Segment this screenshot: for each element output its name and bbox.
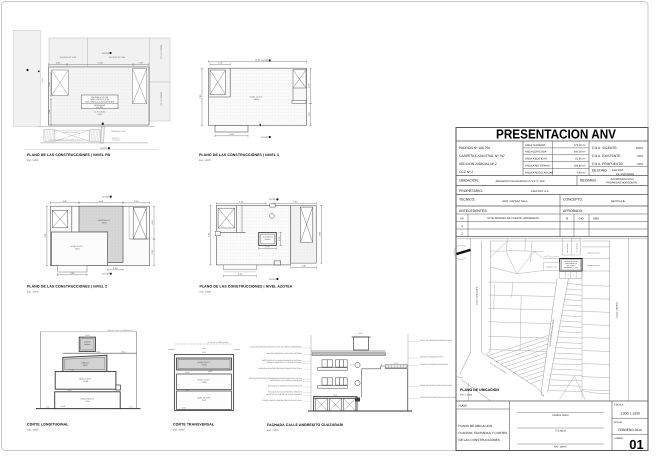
svg-text:+6.33: +6.33 <box>69 369 74 372</box>
svg-text:ANDRESITO GUAZURARI 1771-1777: ANDRESITO GUAZURARI 1771-1777 BIS <box>495 180 544 183</box>
svg-text:+6.33: +6.33 <box>202 364 207 367</box>
svg-text:F.O.S. EXISTENTE: F.O.S. EXISTENTE <box>592 154 621 158</box>
svg-text:CLECONY S.A.: CLECONY S.A. <box>531 190 549 193</box>
svg-text:CONCEPTO:: CONCEPTO: <box>563 198 583 202</box>
svg-text:CARPETA CATASTRAL Nº 797: CARPETA CATASTRAL Nº 797 <box>459 154 505 158</box>
svg-text:FEBRERO 2014: FEBRERO 2014 <box>618 428 642 432</box>
svg-text:APROBADO:: APROBADO: <box>563 209 583 213</box>
svg-text:RECICLAJE: RECICLAJE <box>611 200 626 203</box>
svg-text:+0.20: +0.20 <box>61 405 66 408</box>
svg-text:Esc. 1:200: Esc. 1:200 <box>27 291 39 294</box>
svg-text:24.80: 24.80 <box>41 78 44 82</box>
svg-text:+6.33: +6.33 <box>208 370 213 373</box>
svg-text:PUERTAS DE GARAGE DE CHAPA PLE: PUERTAS DE GARAGE DE CHAPA PLEGADA <box>266 393 303 396</box>
svg-text:AREA A REFORMAR: AREA A REFORMAR <box>525 165 550 168</box>
svg-text:PADRON Nº 1125: PADRON Nº 1125 <box>111 130 125 133</box>
svg-text:PLANO DE UBICACION: PLANO DE UBICACION <box>459 424 493 428</box>
svg-text:PROPIETARIO: PROPIETARIO <box>552 414 568 417</box>
svg-text:+9.62: +9.62 <box>202 347 207 350</box>
svg-text:SUP. PARCELA 1.230 CERTIFICO: SUP. PARCELA 1.230 CERTIFICO <box>85 100 115 103</box>
svg-text:+6.33: +6.33 <box>75 248 80 251</box>
svg-text:Esc. 1:200: Esc. 1:200 <box>27 159 39 162</box>
svg-text:CCZ Nº 2: CCZ Nº 2 <box>459 170 473 174</box>
svg-text:0.00: 0.00 <box>46 405 50 408</box>
svg-text:PLANO DE LAS CONSTRUCCIONES |: PLANO DE LAS CONSTRUCCIONES | NIVEL 2 <box>27 285 107 289</box>
svg-text:Esc. 1:200: Esc. 1:200 <box>173 429 185 432</box>
svg-text:N 0.00: N 0.00 <box>261 59 268 62</box>
svg-text:11.65: 11.65 <box>358 332 362 335</box>
svg-text:11.30: 11.30 <box>255 59 261 62</box>
svg-text:ABERTURAS DE ALUMINIO ANODIZAD: ABERTURAS DE ALUMINIO ANODIZADO <box>270 379 303 382</box>
svg-text:100%: 100% <box>636 146 644 150</box>
svg-text:PLANO DE UBICACION: PLANO DE UBICACION <box>460 388 499 392</box>
svg-text:AREA EDIFICADA: AREA EDIFICADA <box>525 151 547 154</box>
svg-text:LOSA DE HORMIGON ARMADO VISTO: LOSA DE HORMIGON ARMADO VISTO CON PRETIL… <box>250 346 302 349</box>
svg-text:BOMBA: BOMBA <box>84 343 91 346</box>
svg-text:PLANO: PLANO <box>459 405 468 408</box>
svg-text:VIDRIOS LAMINADOS 3+3 SEGUN PL: VIDRIOS LAMINADOS 3+3 SEGUN PLANILLA <box>267 361 303 364</box>
svg-text:LOSA DE HORMIGON VISTO CON GOT: LOSA DE HORMIGON VISTO CON GOTERON <box>266 352 303 355</box>
svg-text:FECHA: FECHA <box>614 421 623 424</box>
svg-text:CORTE LONGITUDINAL: CORTE LONGITUDINAL <box>27 423 69 427</box>
svg-text:81.80 m²: 81.80 m² <box>575 158 585 161</box>
svg-text:UBICACION:: UBICACION: <box>459 179 479 183</box>
svg-text:PADRON Nº 1125: PADRON Nº 1125 <box>160 45 163 59</box>
svg-text:0.40 m²: 0.40 m² <box>577 171 586 174</box>
svg-text:PORTON DE ACCESO VEHICULAR DE: PORTON DE ACCESO VEHICULAR DE CHAPA <box>420 396 457 399</box>
svg-text:NO: NO <box>579 216 584 220</box>
svg-text:F.O.S. PROPUESTO: F.O.S. PROPUESTO <box>592 162 623 166</box>
svg-text:PADRON Nº 1236: PADRON Nº 1236 <box>109 56 126 59</box>
svg-text:CERCO DE HIERRO GALVANIZADO: CERCO DE HIERRO GALVANIZADO <box>420 363 449 366</box>
svg-text:+9.62: +9.62 <box>96 350 101 353</box>
svg-text:11.65: 11.65 <box>202 351 206 354</box>
svg-text:Esc. 1:200: Esc. 1:200 <box>199 159 211 162</box>
svg-text:ESCALA: ESCALA <box>614 404 624 407</box>
svg-text:+3.28: +3.28 <box>67 389 72 392</box>
svg-text:FACHADA CALLE ANDRESITO GUAZUR: FACHADA CALLE ANDRESITO GUAZURARI <box>267 423 343 427</box>
svg-text:PROPIEDAD HORIZONTAL: PROPIEDAD HORIZONTAL <box>606 181 638 184</box>
svg-text:N 0.00: N 0.00 <box>102 52 109 55</box>
svg-text:TECNICO: TECNICO <box>555 430 566 433</box>
svg-text:PLANO DE LAS CONSTRUCCIONES |: PLANO DE LAS CONSTRUCCIONES | NIVEL AZOT… <box>200 285 293 289</box>
svg-text:PADRON 1230: PADRON 1230 <box>566 243 568 253</box>
svg-text:1:200/ 1:1000: 1:200/ 1:1000 <box>620 412 640 416</box>
svg-text:+6.33: +6.33 <box>83 364 88 367</box>
svg-text:+3.28: +3.28 <box>185 371 190 374</box>
svg-text:PLANO DE LAS CONSTRUCCIONES |: PLANO DE LAS CONSTRUCCIONES | NIVEL PB <box>27 153 110 157</box>
svg-text:EDIFICIO: EDIFICIO <box>612 169 623 172</box>
svg-text:+0.20: +0.20 <box>333 394 338 397</box>
svg-text:+0.20: +0.20 <box>185 388 190 391</box>
svg-text:Esc. 1:200: Esc. 1:200 <box>200 291 212 294</box>
svg-text:11.65: 11.65 <box>85 334 89 337</box>
svg-text:344.80 m²: 344.80 m² <box>574 165 586 168</box>
svg-text:0.00: 0.00 <box>129 405 133 408</box>
svg-text:N 0.00: N 0.00 <box>102 195 109 198</box>
svg-text:DESTINO:: DESTINO: <box>592 169 608 173</box>
svg-text:ANTECEDENTES:: ANTECEDENTES: <box>459 209 488 213</box>
svg-text:P: P <box>568 274 569 276</box>
svg-text:VIV. 234: VIV. 234 <box>96 106 103 109</box>
svg-text:NAT. GRAF.: NAT. GRAF. <box>554 446 567 449</box>
svg-text:Nº DE PERMISO DE CONSTR. APROB: Nº DE PERMISO DE CONSTR. APROBADOS <box>487 217 539 220</box>
svg-text:VIDRIO: VIDRIO <box>265 238 272 241</box>
svg-text:LINEA ALT. MAX. S/ ORDENANZA: LINEA ALT. MAX. S/ ORDENANZA <box>107 329 134 332</box>
svg-text:+9.62: +9.62 <box>121 350 126 353</box>
svg-text:P: P <box>573 274 574 276</box>
svg-text:0.00: 0.00 <box>182 406 186 409</box>
svg-text:CORTE TRANSVERSAL: CORTE TRANSVERSAL <box>173 423 215 427</box>
svg-text:MURO REVOCADO Y PINTADO BLANCO: MURO REVOCADO Y PINTADO BLANCO <box>420 384 453 387</box>
svg-text:PRETIL DE HORMIGON ARMADO VIST: PRETIL DE HORMIGON ARMADO VISTO <box>420 339 453 342</box>
svg-text:+3.28: +3.28 <box>83 380 88 383</box>
svg-text:379.36 m²: 379.36 m² <box>574 144 586 147</box>
svg-text:REGIMEN:: REGIMEN: <box>580 179 597 183</box>
svg-text:ALT. MAX. S/ ORDENANZA: ALT. MAX. S/ ORDENANZA <box>208 341 230 344</box>
svg-text:N 0.00: N 0.00 <box>100 147 107 150</box>
svg-text:0.00: 0.00 <box>98 113 102 116</box>
svg-text:DE LAS CONSTRUCCIONES: DE LAS CONSTRUCCIONES <box>459 438 500 442</box>
svg-text:N 0.00: N 0.00 <box>261 136 268 139</box>
svg-text:PADRON Nº 1234: PADRON Nº 1234 <box>60 56 77 59</box>
svg-text:0.00: 0.00 <box>86 400 90 403</box>
svg-text:60%: 60% <box>637 154 643 158</box>
svg-text:PADRON Nº 123: PADRON Nº 123 <box>546 267 557 269</box>
svg-text:AREA A EDIFICAR: AREA A EDIFICAR <box>525 158 547 161</box>
svg-text:SI: SI <box>566 216 569 220</box>
svg-text:TECNICO:: TECNICO: <box>459 198 475 202</box>
svg-text:N 0.00: N 0.00 <box>102 273 109 276</box>
svg-text:PADRON Nº 186.750: PADRON Nº 186.750 <box>459 146 490 150</box>
svg-text:PLANO DE LAS CONSTRUCCIONES |: PLANO DE LAS CONSTRUCCIONES | NIVEL 1 <box>199 153 279 157</box>
svg-text:REVESTIMIENTO PIEDRA GRIS EN P: REVESTIMIENTO PIEDRA GRIS EN PLANTA BAJA <box>263 399 303 402</box>
svg-text:Esc. 1:1000: Esc. 1:1000 <box>460 394 473 397</box>
svg-text:Esc. 1:200: Esc. 1:200 <box>267 429 279 432</box>
svg-text:AÑO: AÑO <box>593 216 600 220</box>
svg-text:N 0.00: N 0.00 <box>269 278 276 281</box>
svg-text:PADRON Nº 1127: PADRON Nº 1127 <box>160 92 163 106</box>
svg-text:PROPIETARIO:: PROPIETARIO: <box>459 189 483 193</box>
svg-text:CALLE CHARRUA: CALLE CHARRUA <box>616 301 619 318</box>
svg-text:AREA TERRENO: AREA TERRENO <box>525 144 545 147</box>
svg-text:BARANDA DE HIERRO PINTADO ESMA: BARANDA DE HIERRO PINTADO ESMALTE SINTET… <box>259 367 303 370</box>
svg-text:+3.28: +3.28 <box>202 381 207 384</box>
svg-text:MURO DE HORMIGON VISTO: MURO DE HORMIGON VISTO <box>420 356 444 359</box>
svg-text:60%: 60% <box>637 162 643 166</box>
svg-text:AREA A REGULARIZAR: AREA A REGULARIZAR <box>525 171 553 174</box>
svg-text:F.O.S. VIGENTE:: F.O.S. VIGENTE: <box>592 146 618 150</box>
svg-text:Esc. 1:200: Esc. 1:200 <box>27 429 39 432</box>
svg-text:PADRON 1232: PADRON 1232 <box>576 243 578 253</box>
svg-text:PLANTAS, FACHADAS Y CORTES: PLANTAS, FACHADAS Y CORTES <box>459 431 508 435</box>
svg-text:LAMINA: LAMINA <box>614 437 623 440</box>
svg-text:PRESENTACION ANV: PRESENTACION ANV <box>496 127 616 142</box>
svg-text:BARANDA DE HIERRO PINTADO ESMA: BARANDA DE HIERRO PINTADO ESMALTE <box>268 385 303 388</box>
svg-text:ARQ. RAYGAZ SALA: ARQ. RAYGAZ SALA <box>503 200 528 203</box>
svg-text:N 0.00: N 0.00 <box>269 198 276 201</box>
svg-text:0.00: 0.00 <box>202 399 206 402</box>
svg-text:+3.28: +3.28 <box>254 98 259 101</box>
svg-text:SECCION JUDICIAL Nº 2: SECCION JUDICIAL Nº 2 <box>459 162 497 166</box>
svg-text:CALLE GUADALUPE: CALLE GUADALUPE <box>475 286 478 305</box>
svg-text:+6.33: +6.33 <box>102 222 107 225</box>
svg-text:01: 01 <box>629 437 643 452</box>
svg-text:346.36 m²: 346.36 m² <box>574 151 586 154</box>
svg-text:11.30: 11.30 <box>97 62 103 65</box>
